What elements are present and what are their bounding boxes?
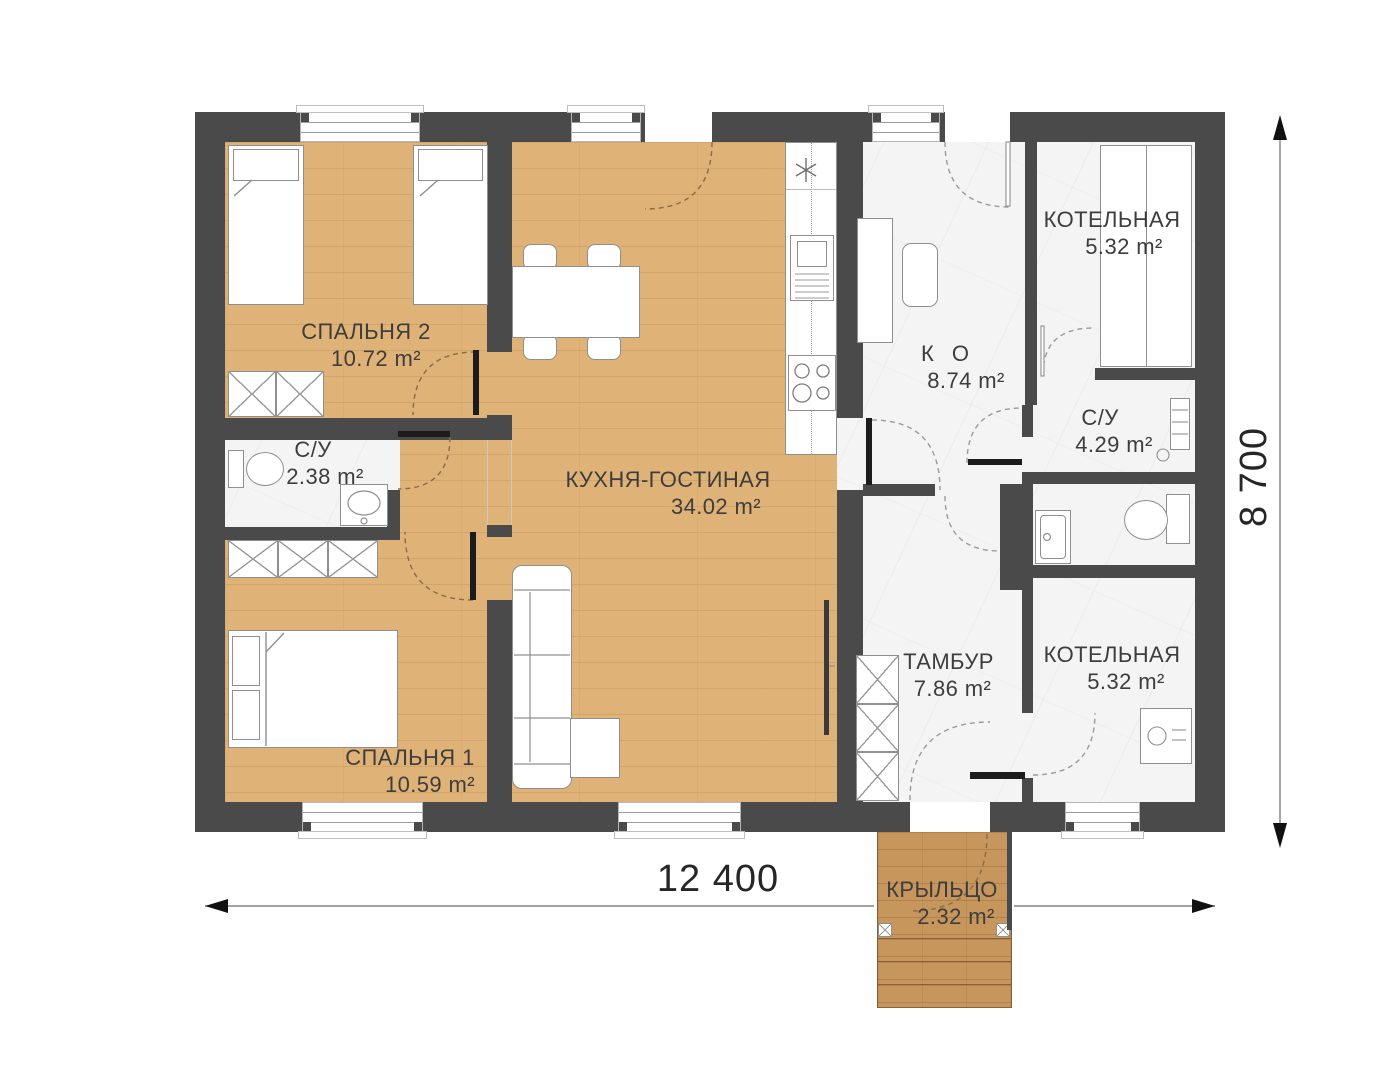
arrow-up-icon (1273, 115, 1287, 140)
washbasin-tap (361, 518, 367, 524)
door-arc-kitchen-corridor (872, 420, 940, 490)
room-area: 7.86 m² (880, 675, 1025, 702)
room-area: 4.29 m² (1054, 431, 1174, 458)
room-name: С/У (1081, 405, 1118, 430)
door-leaf-kitchen-corridor (866, 418, 872, 485)
stove-burners (793, 364, 829, 402)
dimension-width-label: 12 400 (590, 858, 846, 901)
room-area: 5.32 m² (1044, 233, 1204, 260)
dimension-height-label: 8 700 (1233, 377, 1277, 577)
room-name: К О (921, 341, 975, 366)
room-area: 34.02 m² (576, 493, 856, 520)
sink-asterisk-icon (796, 158, 816, 182)
door-arc-bedroom1 (405, 532, 473, 600)
room-label-bathroom-right: С/У 4.29 m² (1040, 404, 1160, 458)
door-arc-bath-small (398, 437, 450, 489)
plan-detail-overlay (0, 0, 1393, 1080)
door-leaf-corridor-back (1006, 142, 1010, 206)
door-arc-kitchen-top (645, 142, 712, 209)
room-name: ТАМБУР (903, 649, 994, 674)
door-leaf-bath-small (398, 431, 450, 437)
room-label-boiler-bottom: КОТЕЛЬНАЯ 5.32 m² (1032, 641, 1192, 695)
arrow-down-icon (1273, 823, 1287, 848)
room-label-boiler-top: КОТЕЛЬНАЯ 5.32 m² (1032, 206, 1192, 260)
door-arc-entrance (910, 722, 990, 800)
room-area: 2.32 m² (886, 903, 1026, 930)
room-area: 10.59 m² (320, 771, 540, 798)
room-name: С/У (294, 437, 331, 462)
room-label-corridor: К О 8.74 m² (868, 340, 1028, 394)
washbasin-wc-tap (1044, 534, 1051, 541)
floor-plan-canvas: СПАЛЬНЯ 2 10.72 m² С/У 2.38 m² СПАЛЬНЯ 1… (0, 0, 1393, 1080)
room-area: 2.38 m² (250, 463, 400, 490)
door-arc-boiler-top (1043, 328, 1093, 375)
arrow-left-icon (205, 899, 228, 913)
door-arc-corridor-tambour (945, 496, 1000, 551)
room-name: СПАЛЬНЯ 2 (301, 319, 430, 344)
boiler-drum (1148, 727, 1166, 745)
washbasin-basin (348, 491, 380, 515)
room-area: 8.74 m² (886, 367, 1046, 394)
room-label-bedroom1: СПАЛЬНЯ 1 10.59 m² (300, 744, 520, 798)
door-leaves (398, 350, 1025, 779)
door-arc-boiler-bottom (1033, 713, 1095, 775)
door-leaf-entrance (970, 772, 1025, 779)
room-area: 10.72 m² (256, 345, 496, 372)
door-arc-bath-right (967, 408, 1022, 463)
room-label-tambour: ТАМБУР 7.86 m² (876, 648, 1021, 702)
door-leaf-bath-right (968, 459, 1022, 465)
arrow-right-icon (1192, 899, 1215, 913)
room-area: 5.32 m² (1046, 668, 1206, 695)
bed-fold (420, 180, 438, 196)
door-leaf-bedroom1 (470, 532, 476, 600)
room-name: КРЫЛЬЦО (886, 877, 998, 902)
room-name: КОТЕЛЬНАЯ (1044, 642, 1181, 667)
room-name: КОТЕЛЬНАЯ (1044, 207, 1181, 232)
room-label-bathroom-small: С/У 2.38 m² (238, 436, 388, 490)
room-label-porch: КРЫЛЬЦО 2.32 m² (872, 876, 1012, 930)
bed-fold (234, 180, 252, 196)
double-bed-fold (266, 633, 284, 652)
room-label-bedroom2: СПАЛЬНЯ 2 10.72 m² (246, 318, 486, 372)
room-name: СПАЛЬНЯ 1 (345, 745, 474, 770)
door-arc-corridor-back (945, 142, 1010, 207)
room-name: КУХНЯ-ГОСТИНАЯ (565, 467, 770, 492)
room-label-kitchen-living: КУХНЯ-ГОСТИНАЯ 34.02 m² (528, 466, 808, 520)
